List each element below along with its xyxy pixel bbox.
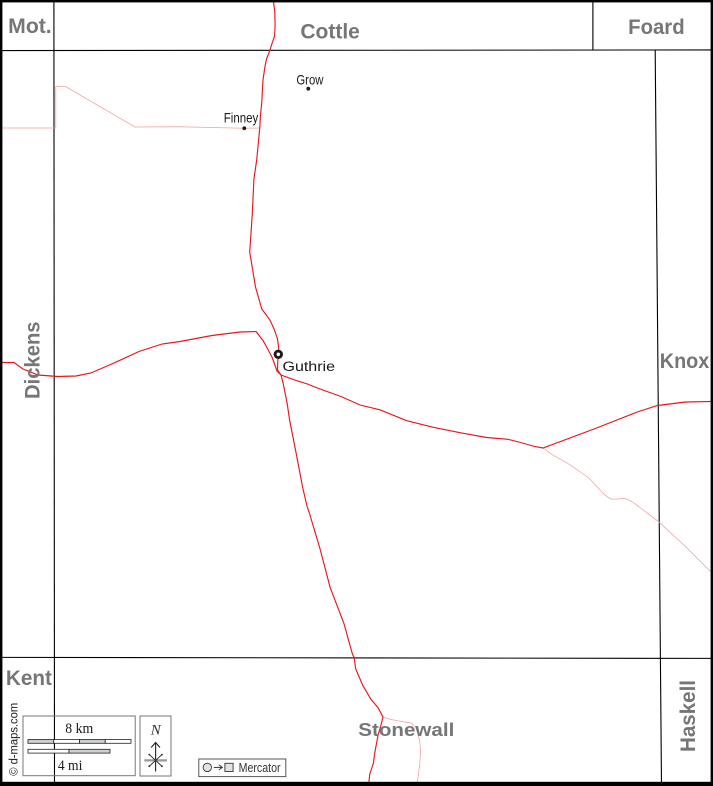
- svg-text:8 km: 8 km: [65, 721, 93, 737]
- svg-text:N: N: [150, 723, 162, 739]
- svg-text:Grow: Grow: [296, 72, 324, 88]
- svg-text:Mot.: Mot.: [8, 15, 52, 38]
- svg-text:Mercator: Mercator: [239, 760, 282, 775]
- svg-text:Haskell: Haskell: [677, 680, 700, 752]
- svg-text:Foard: Foard: [628, 16, 685, 39]
- svg-text:Kent: Kent: [6, 667, 52, 690]
- svg-text:Dickens: Dickens: [22, 321, 45, 399]
- svg-text:© d-maps.com: © d-maps.com: [7, 703, 21, 776]
- svg-text:Guthrie: Guthrie: [283, 359, 336, 375]
- svg-text:Stonewall: Stonewall: [358, 719, 454, 740]
- svg-text:4 mi: 4 mi: [58, 758, 83, 774]
- svg-text:Cottle: Cottle: [300, 20, 360, 43]
- svg-text:Finney: Finney: [224, 110, 259, 126]
- svg-text:Knox: Knox: [660, 350, 710, 373]
